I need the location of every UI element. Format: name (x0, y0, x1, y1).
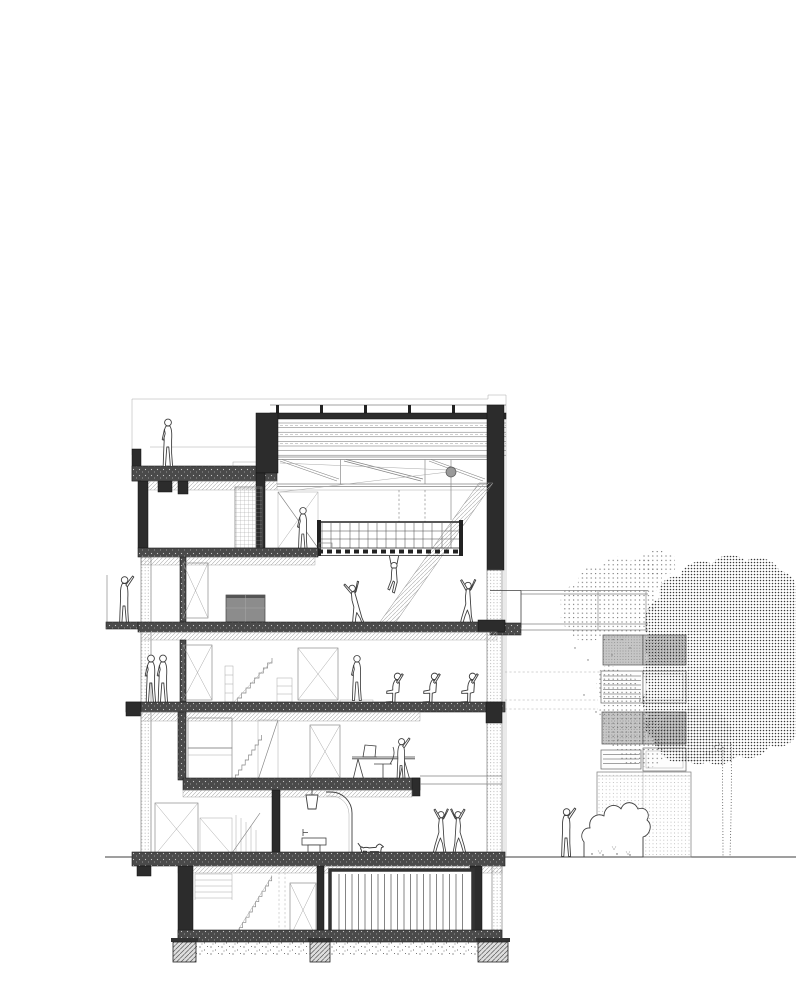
building-section (106, 395, 521, 962)
acrobat-hanging (388, 556, 399, 593)
mesh-screen (235, 487, 262, 548)
x-braced-door (290, 883, 316, 937)
x-braced-door (298, 648, 338, 700)
terrace-slab (132, 466, 277, 481)
wardrobe-x-panel (155, 803, 198, 855)
shelf-mid (277, 678, 292, 702)
slab-level4 (138, 548, 318, 557)
person-on-left-balcony (120, 576, 134, 625)
dancer-ground-b (451, 809, 467, 855)
slab-level3 (138, 622, 505, 632)
laptop (363, 745, 377, 757)
left-wall-upper (138, 481, 148, 548)
stair-flight (233, 658, 272, 703)
slatted-storage-wall (330, 870, 473, 938)
gravel-bed (185, 942, 488, 955)
person-in-studio (297, 507, 307, 552)
person-on-terrace (162, 419, 172, 466)
section-drawing (0, 0, 796, 1000)
x-braced-door (310, 725, 340, 778)
roof-terrace (132, 419, 277, 494)
stair-flight (232, 735, 262, 780)
dancer-arms-up (459, 580, 475, 628)
person-at-desk (397, 738, 410, 783)
mid-level (145, 640, 478, 709)
wash-basin (302, 829, 326, 853)
dancer-ground-a (433, 809, 449, 855)
wardrobe-x-panel (183, 645, 212, 700)
balcony-slab-left (106, 622, 138, 629)
ground-floor (155, 788, 466, 856)
wardrobe-x-panel (183, 563, 208, 618)
arched-opening (326, 792, 352, 853)
braced-panel (258, 720, 278, 780)
office-mezzanine-slab (183, 778, 420, 790)
slab-level2 (126, 702, 505, 712)
shelving (195, 874, 232, 900)
person-pair-b (157, 655, 167, 702)
person-on-plinth (351, 655, 361, 700)
ground-slab (132, 852, 505, 866)
roof-assembly (270, 405, 506, 455)
split-office-level (178, 712, 502, 797)
low-cabinet (200, 818, 232, 855)
person-pointing-garden (562, 808, 576, 857)
braced-partition (278, 492, 318, 548)
bush (582, 803, 650, 857)
hatched-stair-flight (375, 483, 493, 629)
media-cabinet (226, 595, 265, 622)
basement-slab (178, 930, 502, 942)
shelf-small (225, 666, 233, 702)
tree-canopy-lobe (653, 708, 732, 764)
section-canvas (0, 0, 796, 1000)
stair-flight (232, 813, 260, 853)
stair-flight (233, 876, 272, 938)
